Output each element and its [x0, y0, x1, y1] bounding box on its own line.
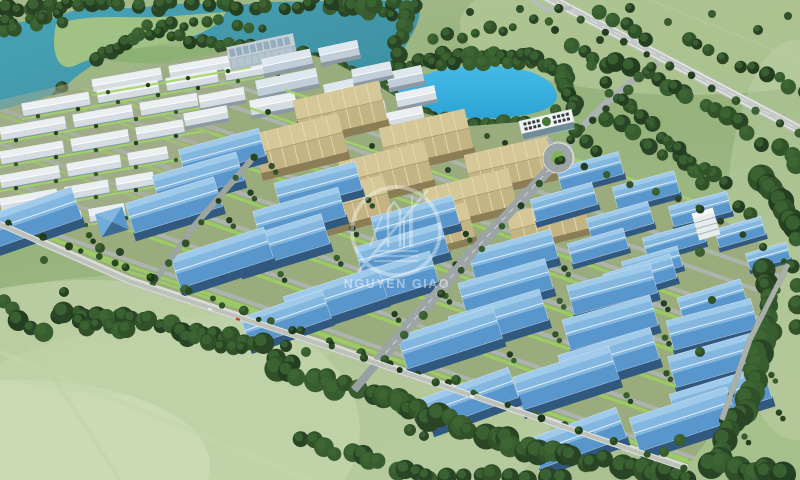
svg-text:NGUYEN GIAO: NGUYEN GIAO — [344, 277, 451, 291]
